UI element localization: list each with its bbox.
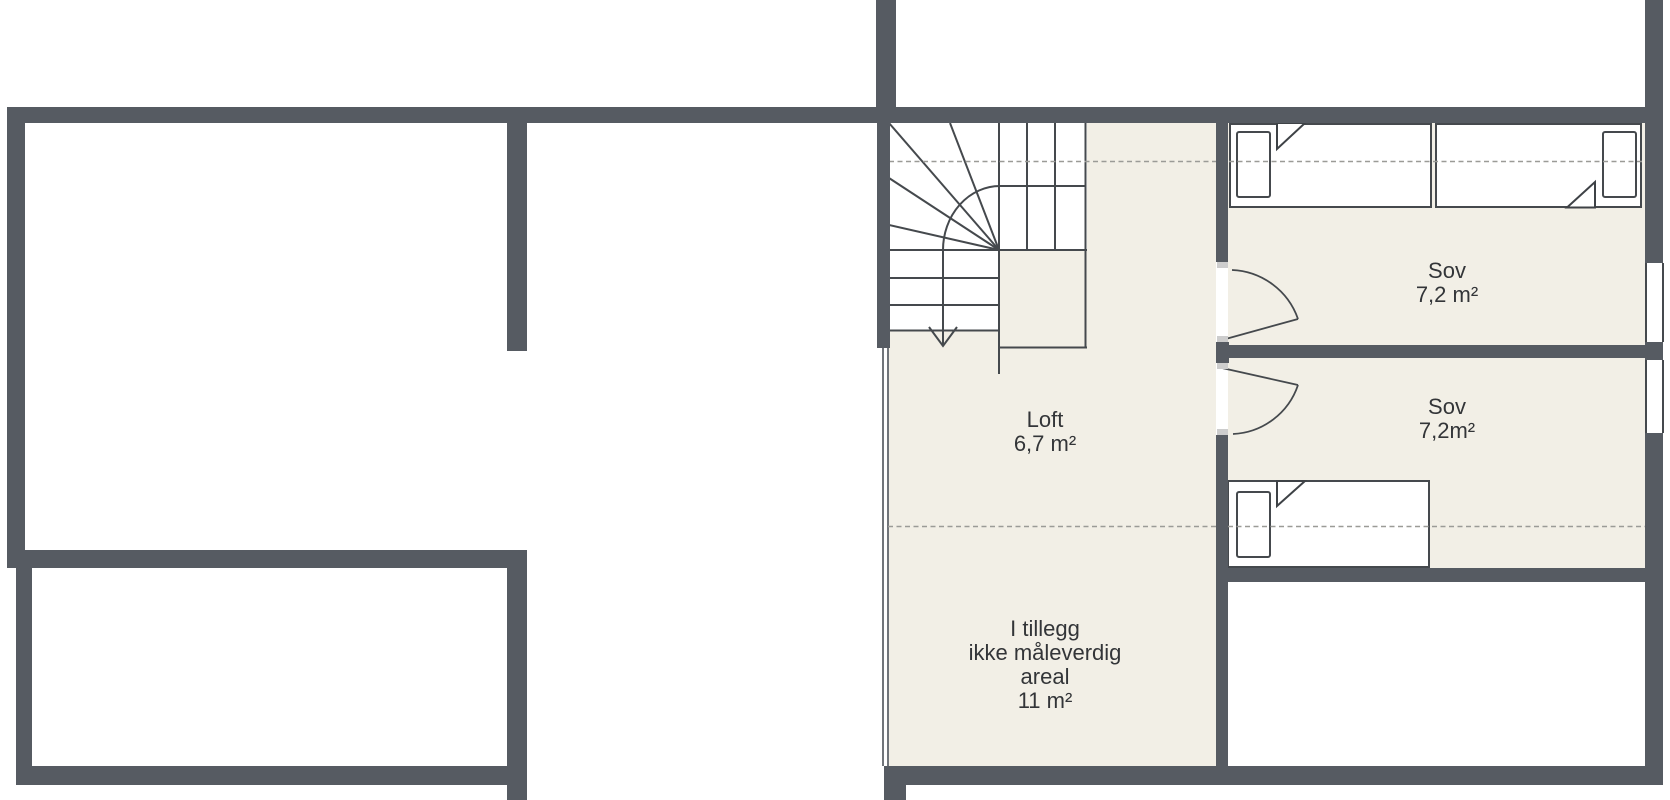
wall-bedroom2-bottom (1216, 568, 1663, 582)
door-jamb-cap (1217, 336, 1228, 342)
room-name: Loft (1014, 408, 1076, 432)
wall-bedrooms-vertical-top (1216, 123, 1228, 262)
duvet-fold-icon (1277, 123, 1595, 506)
extra-area-line: I tillegg (969, 617, 1122, 641)
room-name: Sov (1416, 259, 1478, 283)
wall-lower-room-bottom (16, 766, 527, 785)
wall-outer-right-bottom (1645, 433, 1663, 785)
wall-interior-left-section (507, 123, 527, 351)
extra-area-line: ikke måleverdig (969, 641, 1122, 665)
window-bedroom1-icon (1645, 263, 1664, 342)
wall-bedrooms-vertical-bottom (1216, 435, 1228, 766)
door-jamb-cap (1217, 363, 1228, 369)
wall-outer-left (7, 107, 25, 568)
room-label-bedroom1: Sov 7,2 m² (1416, 259, 1478, 307)
wall-outer-right-mid (1645, 342, 1663, 360)
wall-bottom-stub (884, 785, 906, 800)
wall-stair-left (877, 123, 890, 348)
extra-area-line: 11 m² (969, 689, 1122, 713)
room-area: 7,2m² (1419, 419, 1475, 443)
floor-plan: Loft 6,7 m² Sov 7,2 m² Sov 7,2m² I tille… (0, 0, 1670, 800)
wall-top-stub (876, 0, 896, 123)
headroom-dashed-line (888, 162, 1645, 527)
wall-outer-right-top (1645, 0, 1663, 263)
room-label-bedroom2: Sov 7,2m² (1419, 395, 1475, 443)
winder-staircase-icon (889, 123, 1087, 374)
wall-lower-room-left (16, 568, 32, 785)
door-jamb-cap (1217, 429, 1228, 435)
room-name: Sov (1419, 395, 1475, 419)
wall-bedroom-divider (1228, 345, 1663, 358)
window-bedroom2-icon (1645, 360, 1664, 433)
wall-lower-room-right (507, 568, 527, 800)
wall-bottom-center (884, 766, 1663, 785)
room-label-loft: Loft 6,7 m² (1014, 408, 1076, 456)
door-jamb-cap (1217, 262, 1228, 268)
door-swing-bedroom1-icon (1222, 270, 1298, 340)
door-swing-bedroom2-icon (1222, 368, 1298, 434)
room-area: 6,7 m² (1014, 432, 1076, 456)
stair-walkline-arrow-icon (929, 186, 1085, 346)
wall-mid-left-horizontal (7, 550, 527, 568)
room-label-extra-area: I tillegg ikke måleverdig areal 11 m² (969, 617, 1122, 713)
extra-area-line: areal (969, 665, 1122, 689)
wall-outer-top (7, 107, 1663, 123)
room-area: 7,2 m² (1416, 283, 1478, 307)
